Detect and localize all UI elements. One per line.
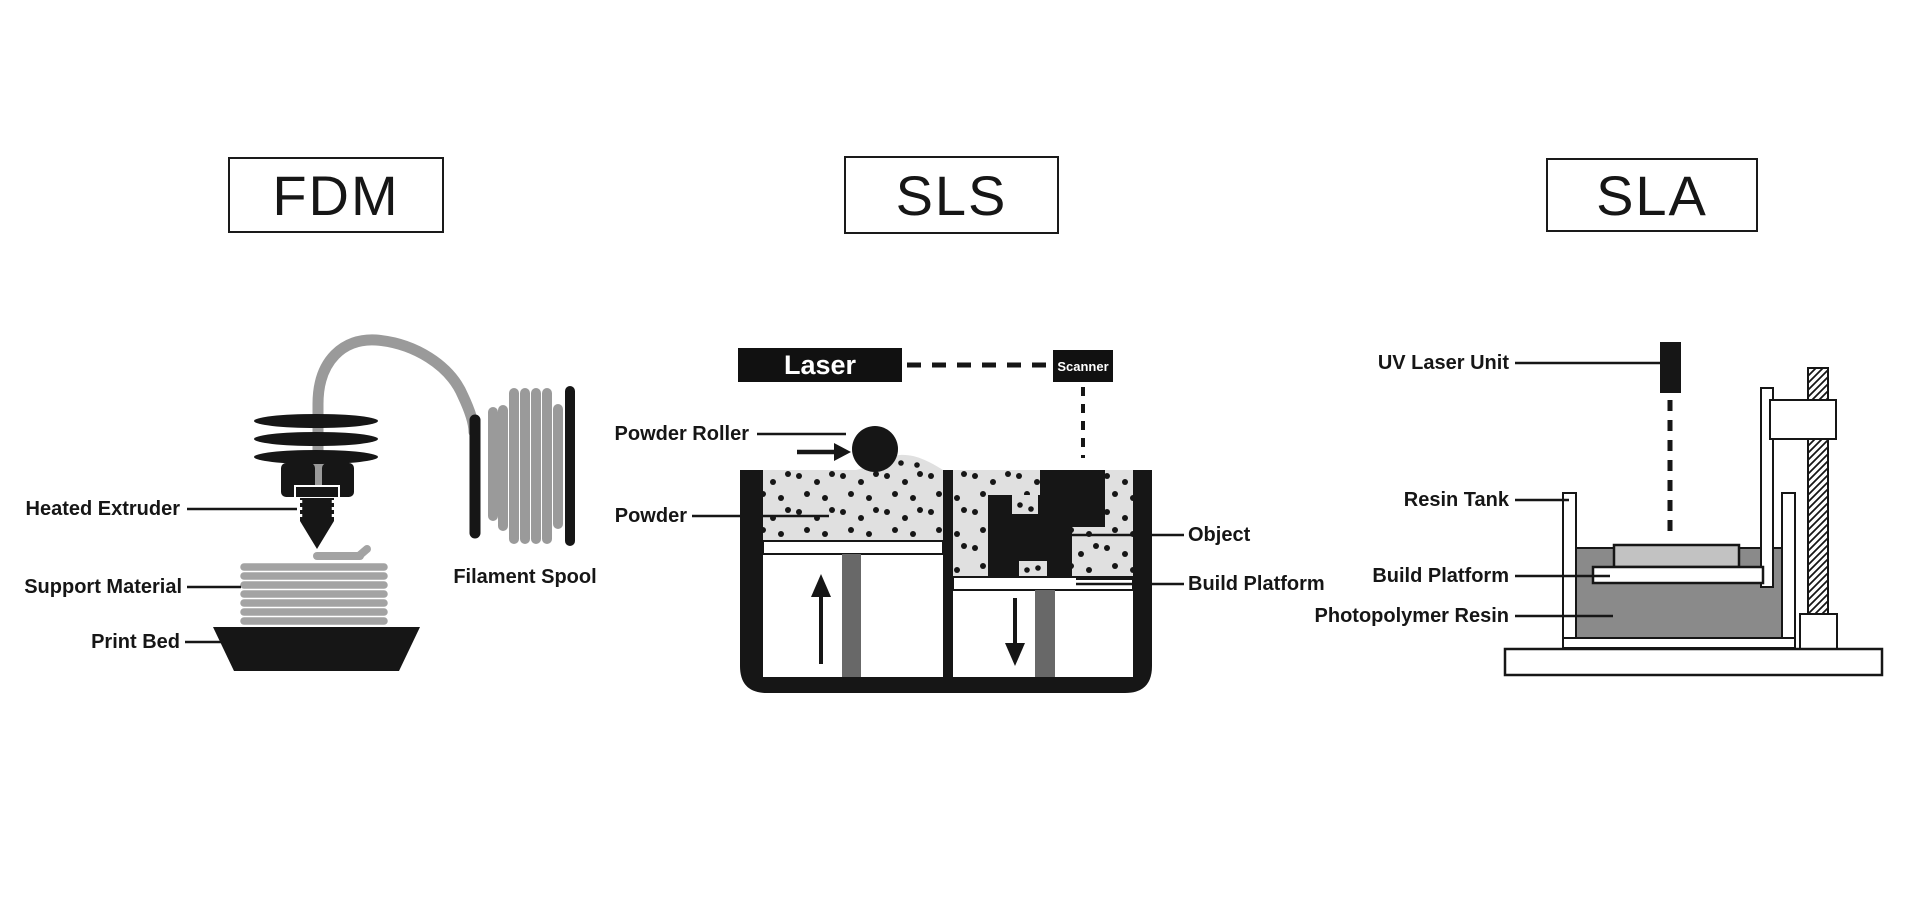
object-label: Object <box>1188 523 1250 547</box>
heated-extruder-label: Heated Extruder <box>26 497 181 521</box>
sls-title-text: SLS <box>896 163 1008 228</box>
build-piston-rod <box>1035 590 1055 677</box>
powder-label: Powder <box>615 504 687 528</box>
diagram-artwork <box>0 0 1920 900</box>
three-printing-technologies-diagram: FDM SLS SLA Laser Scanner Heated Extrude… <box>0 0 1920 900</box>
roller-direction-arrow <box>797 443 851 461</box>
fdm-title-box: FDM <box>228 157 444 233</box>
support-material-layers <box>244 567 384 621</box>
sla-title-box: SLA <box>1546 158 1758 232</box>
build-platform-graphic <box>1593 567 1763 583</box>
sla-build-platform-label: Build Platform <box>1372 564 1509 588</box>
sls-build-platform-label: Build Platform <box>1188 572 1325 596</box>
uv-laser-unit-label: UV Laser Unit <box>1378 351 1509 375</box>
extruder-nozzle <box>300 498 334 549</box>
screw-base-block <box>1800 614 1837 649</box>
filament-spool-graphic <box>493 391 570 541</box>
powder-roller-label: Powder Roller <box>615 422 749 446</box>
filament-spool-label: Filament Spool <box>445 565 605 589</box>
printed-part-graphic <box>1614 545 1739 567</box>
sla-title-text: SLA <box>1596 163 1708 228</box>
extruded-material-line <box>317 549 367 556</box>
uv-laser-unit-graphic <box>1660 342 1681 393</box>
scanner-box: Scanner <box>1053 350 1113 382</box>
supply-piston-plate <box>763 541 943 554</box>
powder-roller-graphic <box>852 426 898 472</box>
print-bed-label: Print Bed <box>91 630 180 654</box>
sls-title-box: SLS <box>844 156 1059 234</box>
laser-box: Laser <box>738 348 902 382</box>
resin-tank-label: Resin Tank <box>1404 488 1509 512</box>
fdm-title-text: FDM <box>272 163 399 228</box>
sls-diagram <box>692 365 1184 693</box>
support-material-label: Support Material <box>24 575 182 599</box>
extruder-cooling-fins <box>254 414 378 464</box>
supply-piston-rod <box>842 554 861 677</box>
fdm-diagram <box>185 340 570 671</box>
carriage <box>1770 400 1836 439</box>
sla-diagram <box>1505 342 1882 675</box>
machine-base <box>1505 649 1882 675</box>
photopolymer-resin-label: Photopolymer Resin <box>1315 604 1509 628</box>
print-bed-graphic <box>213 627 420 671</box>
